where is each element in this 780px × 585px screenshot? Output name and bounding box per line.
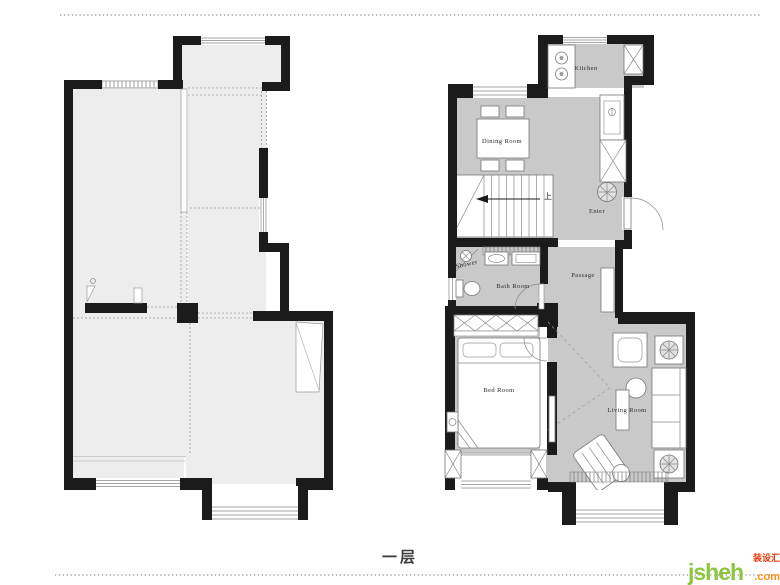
plant-icon bbox=[655, 336, 683, 364]
left-floorplan bbox=[64, 36, 333, 522]
watermark-brand: jsheh bbox=[688, 561, 743, 584]
watermark-badge: 装设汇 bbox=[753, 554, 780, 563]
floor-caption: 一层 bbox=[355, 546, 445, 567]
hallway-cabinet-icon bbox=[601, 268, 614, 312]
wardrobe-icon bbox=[454, 315, 538, 336]
room-label-living: Living Room bbox=[607, 407, 646, 414]
kitchen-sink-icon bbox=[600, 95, 624, 140]
stove-icon bbox=[548, 45, 575, 88]
built-in-wardrobe-icon bbox=[296, 322, 323, 392]
bathroom-sink-icon bbox=[485, 252, 540, 265]
sofa-icon bbox=[652, 368, 686, 448]
room-label-enter: Enter bbox=[589, 208, 606, 215]
tv-cabinet-icon bbox=[549, 396, 555, 442]
room-label-bed: Bed Room bbox=[483, 387, 514, 394]
right-floorplan: Kitchen Dining Room 上 Enter Shower Bath … bbox=[445, 35, 695, 525]
left-plan-bay-window bbox=[212, 486, 298, 522]
thin-partition-wall bbox=[181, 89, 187, 212]
toilet-icon bbox=[456, 280, 480, 297]
stairs-up-label: 上 bbox=[544, 192, 552, 201]
entrance-door-icon bbox=[622, 197, 663, 230]
fridge-icon bbox=[624, 45, 643, 74]
room-label-dining: Dining Room bbox=[482, 138, 522, 145]
armchair-icon bbox=[613, 333, 647, 367]
living-bay-window bbox=[576, 490, 664, 525]
floorplan-canvas: Kitchen Dining Room 上 Enter Shower Bath … bbox=[0, 0, 780, 585]
room-label-kitchen: Kitchen bbox=[574, 65, 598, 72]
kitchen-cabinet-icon bbox=[600, 140, 626, 182]
watermark-domain: .com bbox=[754, 572, 780, 583]
floorplan-page: Kitchen Dining Room 上 Enter Shower Bath … bbox=[0, 0, 780, 585]
wall-post bbox=[134, 288, 142, 303]
bedroom-balcony bbox=[445, 450, 547, 491]
nightstand-icon bbox=[447, 412, 458, 432]
room-bed bbox=[445, 315, 547, 491]
plant-icon bbox=[598, 183, 617, 202]
stairs-icon bbox=[452, 175, 553, 237]
site-watermark: jsheh 装设汇 .com bbox=[688, 554, 780, 584]
room-label-passage: Passage bbox=[571, 272, 594, 279]
room-label-bath: Bath Room bbox=[496, 283, 529, 290]
window-sill bbox=[570, 472, 668, 482]
